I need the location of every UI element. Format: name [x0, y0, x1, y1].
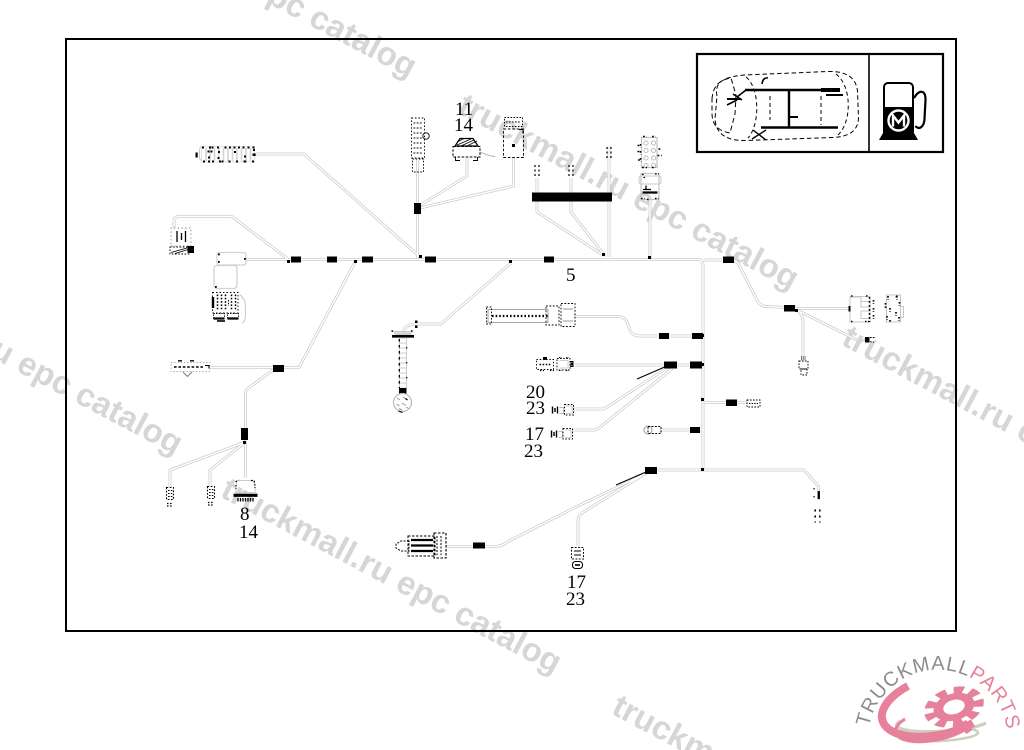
svg-text:14: 14: [454, 115, 474, 136]
svg-text:5: 5: [566, 265, 576, 286]
svg-text:TRUCKMALLPARTS: TRUCKMALLPARTS: [852, 653, 1024, 732]
svg-text:truckmall.ru epc catalog: truckmall.ru epc catalog: [71, 0, 424, 84]
svg-text:14: 14: [239, 522, 259, 543]
svg-text:truckmall.ru epc catalog: truckmall.ru epc catalog: [0, 251, 189, 462]
svg-text:23: 23: [526, 398, 545, 419]
svg-text:23: 23: [524, 441, 543, 462]
svg-text:truckmall.ru epc catalog: truckmall.ru epc catalog: [216, 470, 569, 681]
svg-text:truckmall.ru epc catalog: truckmall.ru epc catalog: [837, 318, 1024, 529]
svg-text:23: 23: [566, 589, 585, 610]
